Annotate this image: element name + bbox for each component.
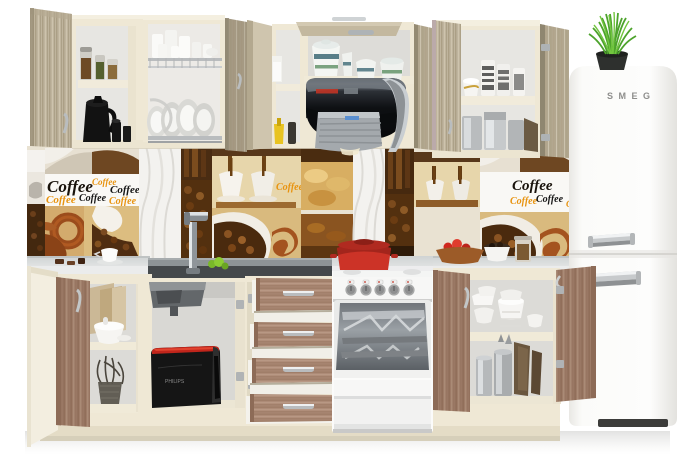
svg-text:Coffee: Coffee (109, 196, 137, 207)
svg-text:Coffee: Coffee (536, 194, 564, 205)
svg-text:Coffee: Coffee (510, 196, 538, 207)
svg-text:PHILIPS: PHILIPS (165, 379, 185, 385)
svg-text:Coffee: Coffee (512, 178, 553, 194)
svg-text:Coffee: Coffee (79, 193, 107, 204)
svg-text:Coffee: Coffee (46, 194, 76, 206)
svg-text:Coffee: Coffee (276, 182, 304, 193)
svg-text:Coffee: Coffee (110, 184, 140, 196)
svg-text:SMEG: SMEG (607, 91, 656, 101)
